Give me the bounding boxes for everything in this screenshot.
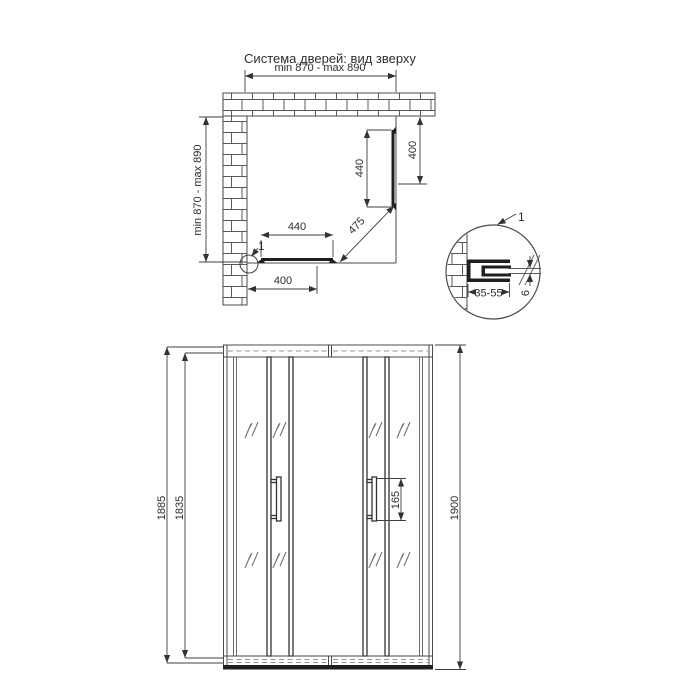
- technical-drawing-page: Система дверей: вид зверху min 870 - max…: [0, 0, 700, 700]
- brick-wall-left: [223, 116, 247, 305]
- dimension-bottom-door: 440: [261, 221, 333, 257]
- dim-label-right-offset: 400: [407, 141, 419, 159]
- top-rail: [223, 345, 433, 357]
- dimension-right-door: 440: [354, 130, 391, 207]
- dim-label-right-door: 440: [354, 159, 366, 177]
- left-wall-profile: [224, 345, 237, 670]
- detail-view: 35-55 6 1: [442, 210, 541, 323]
- top-view: Система дверей: вид зверху min 870 - max…: [192, 51, 435, 305]
- dim-label-adjustment: 35-55: [474, 288, 502, 300]
- dimension-door-height: 1885: [156, 347, 223, 663]
- dimension-diagonal-entry: 475: [340, 206, 394, 262]
- dim-label-total-height: 1900: [449, 496, 461, 520]
- detail-callout-label: 1: [258, 239, 265, 253]
- right-wall-profile: [420, 345, 433, 670]
- dim-label-width: min 870 - max 890: [274, 62, 365, 74]
- dim-label-door-height: 1885: [156, 496, 168, 520]
- dim-label-glass-thickness: 6: [520, 290, 532, 296]
- brick-wall-top: [223, 93, 435, 116]
- dim-label-glass-height: 1835: [174, 496, 186, 520]
- right-door-panel-plan: [392, 127, 397, 211]
- detail-leader: 1: [498, 210, 526, 225]
- shower-door-technical-drawing: Система дверей: вид зверху min 870 - max…: [0, 0, 700, 700]
- dim-label-bottom-offset: 400: [274, 275, 292, 287]
- enclosure-outline: [247, 116, 396, 263]
- dim-label-handle-length: 165: [390, 491, 402, 509]
- dimension-right-offset: 400: [398, 117, 427, 184]
- front-view: 1835 1885 1900 165: [156, 345, 466, 670]
- bottom-door-panel-plan: [257, 258, 338, 263]
- dim-label-depth: min 870 - max 890: [192, 144, 204, 235]
- detail-label: 1: [518, 210, 525, 224]
- dimension-width-top: min 870 - max 890: [245, 62, 396, 92]
- bottom-rail: [223, 656, 433, 670]
- dimension-glass-height: 1835: [174, 353, 223, 658]
- dimension-total-height: 1900: [435, 345, 466, 670]
- dim-label-diagonal: 475: [346, 215, 367, 237]
- dimension-bottom-offset: 400: [248, 266, 317, 294]
- left-door-handle: [271, 477, 281, 521]
- right-door-handle: [367, 477, 377, 521]
- dimension-handle-length: 165: [377, 479, 406, 521]
- dim-label-bottom-door: 440: [288, 221, 306, 233]
